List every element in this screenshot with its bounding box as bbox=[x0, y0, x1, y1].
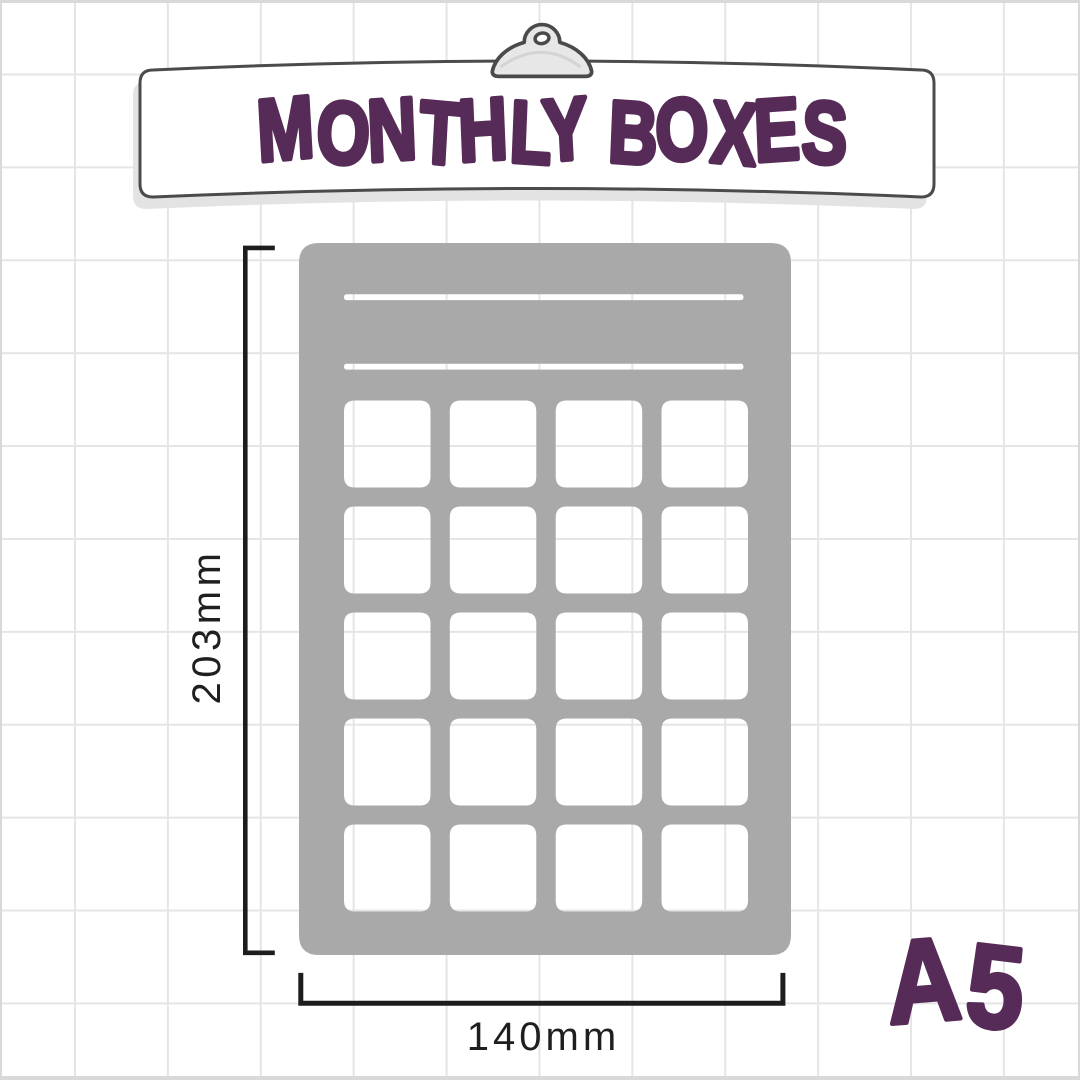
svg-text:203mm: 203mm bbox=[185, 549, 229, 705]
svg-text:A5: A5 bbox=[883, 913, 1030, 1057]
svg-text:140mm: 140mm bbox=[467, 1015, 620, 1059]
svg-text:MONTHLY BOXES: MONTHLY BOXES bbox=[254, 77, 849, 184]
